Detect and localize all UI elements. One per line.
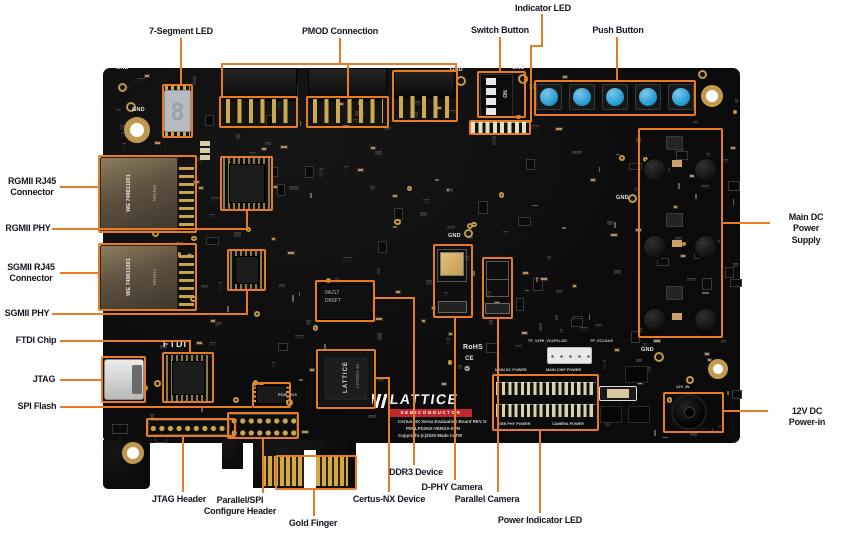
callout-box-gold-finger [275, 455, 357, 490]
gnd-silkscreen: GND [132, 108, 145, 114]
label-gold-finger: Gold Finger [289, 518, 337, 529]
board-title-line: Copyright (c)2020 Made in TW [398, 433, 462, 439]
smd-component [279, 284, 285, 287]
smd-component [730, 279, 742, 287]
smd-component [654, 430, 656, 437]
label-switch-button: Switch Button [471, 25, 529, 36]
power-group-label: MAIN DC POWER [495, 368, 527, 373]
smd-component [211, 197, 220, 201]
smd-component [154, 141, 161, 145]
fuse-element [607, 389, 629, 398]
leader-switch [499, 37, 501, 72]
smd-component [306, 320, 310, 325]
callout-box-push-button [534, 80, 696, 116]
label-parspi-header: Parallel/SPI Configure Header [204, 495, 276, 518]
smd-component [704, 352, 710, 356]
smd-component [370, 186, 374, 190]
smd-component [209, 342, 217, 346]
smd-component [193, 76, 197, 85]
leader-pmod [221, 63, 457, 65]
smd-component [518, 217, 531, 226]
smd-component [292, 295, 294, 302]
callout-box-ftdi [162, 352, 214, 403]
diode [628, 406, 650, 423]
smd-component [300, 121, 302, 127]
callout-box-main-dc [638, 128, 723, 338]
smd-component [392, 194, 399, 198]
jumper [112, 424, 128, 434]
smd-component [196, 341, 203, 345]
smd-component [653, 339, 661, 343]
smd-component [539, 323, 542, 330]
smd-component [516, 298, 525, 311]
leader-sgmii-phy [246, 291, 248, 315]
rohs-silkscreen: RoHS [463, 344, 483, 351]
smd-component [287, 251, 295, 255]
smd-component [614, 348, 620, 352]
smd-component [289, 186, 299, 190]
callout-box-sgmii-phy [227, 249, 266, 291]
callout-box-switch [477, 71, 526, 118]
label-spi-flash: SPI Flash [18, 401, 57, 412]
testpoint-pad [118, 83, 127, 92]
smd-component [536, 277, 538, 282]
smd-component [580, 327, 589, 331]
smd-component [421, 319, 427, 323]
leader-jtag [60, 379, 101, 381]
smd-component [254, 311, 260, 317]
smd-component [309, 368, 316, 372]
leader-gold-finger [313, 490, 315, 516]
callout-box-parallel-camera [482, 257, 513, 319]
callout-box-12v [663, 392, 724, 433]
smd-component [249, 152, 256, 156]
smd-component [441, 382, 447, 386]
smd-component [209, 214, 215, 219]
smd-component [595, 324, 602, 328]
smd-component [562, 75, 568, 79]
power-group-label: MAIN CHIP POWER [546, 368, 581, 373]
callout-box-power-led [492, 374, 599, 431]
mounting-hole [701, 85, 723, 107]
leader-main-dc [723, 222, 770, 224]
label-sgmii-rj45: SGMII RJ45 Connector [7, 262, 55, 285]
label-dphy-camera: D-PHY Camera [422, 482, 483, 493]
smd-component [614, 270, 621, 274]
testpoint-pad [686, 376, 694, 384]
smd-component [599, 167, 601, 173]
leader-parallel-camera [497, 319, 499, 492]
smd-component [305, 166, 313, 178]
mounting-hole [122, 442, 144, 464]
smd-component [227, 306, 229, 312]
smd-component [198, 186, 204, 190]
board-title-line: Certus-NX Versa Evaluation Board REV D [398, 419, 487, 425]
smd-component [610, 233, 618, 237]
callout-box-spi-flash [252, 382, 291, 408]
smd-component [590, 178, 596, 182]
leader-indicator-led [530, 45, 532, 122]
smd-component [607, 221, 614, 225]
led [200, 148, 210, 153]
diode [600, 406, 622, 423]
leader-parspi [262, 439, 264, 493]
smd-component [555, 127, 563, 131]
label-jtag-header: JTAG Header [152, 494, 206, 505]
smd-component [215, 324, 220, 327]
smd-component [280, 145, 288, 149]
testpoint-pad [654, 352, 664, 362]
label-indicator-led: Indicator LED [515, 3, 571, 14]
lattice-semiconductor-bar: SEMICONDUCTOR [390, 409, 472, 417]
smd-component [447, 226, 456, 229]
label-pmod-connection: PMOD Connection [302, 26, 378, 37]
smd-component [299, 292, 301, 297]
smd-component [234, 232, 241, 237]
gnd-silkscreen: GND [641, 348, 654, 354]
smd-component [357, 168, 364, 172]
smd-component [137, 78, 145, 83]
smd-component [271, 237, 276, 241]
leader-ddr3 [413, 297, 415, 465]
smd-component [218, 282, 223, 292]
callout-box-7-segment [162, 84, 193, 138]
smd-component [407, 186, 412, 191]
smd-component [210, 319, 216, 323]
smd-component [116, 109, 121, 113]
smd-component [272, 362, 275, 367]
smd-component [378, 241, 387, 253]
smd-component [733, 263, 738, 266]
smd-component [735, 99, 738, 104]
label-12v-dc: 12V DC Power-in [786, 406, 829, 429]
smd-component [144, 74, 150, 78]
mounting-hole [124, 117, 150, 143]
smd-component [319, 168, 323, 177]
label-rgmii-rj45: RGMII RJ45 Connector [8, 176, 56, 199]
label-sgmii-phy: SGMII PHY [5, 308, 50, 319]
smd-component [733, 110, 738, 115]
leader-7-segment [180, 38, 182, 85]
smd-component [478, 201, 488, 214]
smd-component [589, 314, 591, 320]
smd-component [690, 433, 697, 436]
smd-component [301, 430, 309, 434]
smd-component [721, 340, 726, 343]
callout-box-pmod-1 [219, 96, 298, 128]
smd-component [375, 317, 383, 321]
smd-component [310, 193, 312, 199]
smd-component [525, 290, 529, 292]
smd-component [377, 333, 381, 341]
smd-component [449, 189, 453, 193]
label-ddr3: DDR3 Device [389, 467, 443, 478]
smd-component [522, 271, 529, 275]
led [200, 141, 210, 146]
mounting-hole [708, 359, 728, 379]
smd-component [377, 379, 384, 383]
gnd-silkscreen: GND [616, 196, 629, 202]
callout-box-ddr3 [315, 280, 375, 322]
smd-component [730, 146, 736, 150]
smd-component [662, 437, 668, 439]
testpoint-pad [628, 194, 637, 203]
smd-component [265, 142, 271, 145]
smd-component [636, 359, 642, 362]
testpoint-pad [464, 229, 473, 238]
smd-component [725, 267, 734, 278]
smd-component [572, 284, 578, 288]
smd-component [395, 290, 402, 294]
testpoint-pad [698, 70, 707, 79]
smd-component [368, 415, 377, 418]
leader-rgmii-rj45 [60, 186, 98, 188]
lattice-logo-text: LATTICE [389, 392, 460, 406]
smd-component [344, 166, 349, 169]
callout-box-pmod-2 [306, 96, 389, 128]
callout-box-sgmii-rj45 [98, 243, 197, 311]
smd-component [295, 335, 305, 340]
callout-box-rgmii-phy [220, 156, 273, 211]
smd-component [560, 329, 563, 334]
smd-component [515, 345, 523, 348]
callout-box-indicator-led [469, 120, 531, 135]
smd-component [562, 227, 566, 229]
leader-indicator-led [541, 14, 543, 47]
leader-pmod [455, 63, 457, 72]
ce-silkscreen: CE [465, 356, 474, 362]
label-parallel-camera: Parallel Camera [455, 494, 520, 505]
gnd-silkscreen: GND [116, 66, 129, 72]
callout-box-certus [316, 349, 376, 409]
label-push-button: Push Button [592, 25, 643, 36]
leader-push-button [616, 37, 618, 81]
recycle-silkscreen: ♲ [464, 366, 470, 373]
smd-component [634, 188, 638, 192]
smd-component [616, 154, 620, 156]
12v-in-silkscreen: 12V_IN [676, 384, 689, 390]
smd-component [619, 155, 625, 161]
board-diagram: 8 ON WE 749811001 NR1943 WE 749811001 NR… [0, 0, 850, 534]
smd-component [732, 390, 743, 398]
callout-box-rgmii-rj45 [98, 155, 197, 233]
smd-component [435, 179, 439, 181]
leader-rgmii-phy [246, 211, 248, 230]
smd-component [603, 360, 606, 369]
smd-component [733, 199, 735, 206]
leader-ftdi [189, 340, 191, 353]
white-connector [547, 347, 592, 364]
leader-sgmii-rj45 [60, 272, 98, 274]
tp-silkscreen: TP_V1P8_VCCPLLSD [528, 339, 567, 344]
smd-component [205, 115, 213, 127]
label-ftdi-chip: FTDI Chip [16, 335, 57, 346]
smd-component [489, 320, 493, 325]
leader-pmod [347, 63, 349, 97]
smd-component [693, 121, 698, 124]
label-power-indicator-led: Power Indicator LED [498, 515, 582, 526]
smd-component [526, 159, 535, 170]
tp-silkscreen: TP_VCCAUX [590, 339, 613, 344]
label-main-dc-power: Main DC Power Supply [784, 212, 828, 246]
smd-component [313, 325, 318, 330]
smd-component [423, 199, 430, 203]
smd-component [492, 136, 496, 145]
smd-component [547, 256, 552, 261]
callout-box-pmod-3 [392, 70, 458, 122]
smd-component [370, 146, 377, 150]
callout-box-jtag [101, 356, 146, 403]
smd-component [191, 236, 197, 242]
smd-component [458, 365, 462, 369]
smd-component [448, 332, 454, 336]
smd-component [448, 360, 453, 365]
label-7-segment-led: 7-Segment LED [149, 26, 213, 37]
smd-component [201, 285, 207, 288]
smd-component [572, 151, 582, 154]
smd-component [393, 226, 397, 228]
callout-box-dphy [433, 244, 473, 318]
smd-component [206, 237, 219, 246]
smd-component [122, 143, 126, 151]
gnd-silkscreen: GND [448, 234, 461, 240]
smd-component [299, 379, 303, 381]
smd-component [154, 380, 161, 387]
smd-component [540, 277, 548, 281]
smd-component [614, 222, 616, 228]
smd-component [375, 151, 382, 155]
leader-12v [724, 410, 768, 412]
callout-box-jtag-header [146, 418, 236, 437]
smd-component [343, 257, 353, 261]
smd-component [473, 271, 475, 276]
smd-component [420, 212, 427, 216]
label-rgmii-phy: RGMII PHY [5, 223, 50, 234]
label-jtag: JTAG [33, 374, 56, 385]
smd-component [556, 290, 563, 293]
smd-component [521, 331, 528, 335]
smd-component [377, 268, 381, 274]
leader-rgmii-phy [52, 228, 248, 230]
smd-component [532, 205, 538, 207]
smd-component [446, 338, 450, 346]
leader-pmod [221, 63, 223, 97]
smd-component [236, 134, 240, 139]
smd-component [503, 231, 509, 235]
leader-pmod [339, 38, 341, 65]
smd-component [201, 408, 203, 412]
smd-component [530, 125, 539, 129]
smd-component [394, 219, 400, 225]
leader-spi-flash [60, 406, 252, 408]
smd-component [277, 184, 285, 197]
smd-component [571, 318, 583, 327]
smd-component [426, 280, 431, 284]
smd-component [278, 343, 289, 351]
smd-component [727, 391, 729, 396]
leader-sgmii-phy [52, 313, 248, 315]
callout-box-parspi-header [227, 412, 299, 439]
smd-component [555, 315, 559, 320]
smd-component [728, 181, 740, 191]
leader-ddr3 [375, 297, 415, 299]
leader-power-led [539, 431, 541, 513]
leader-dphy [454, 318, 456, 480]
diode [625, 366, 648, 383]
smd-component [261, 147, 268, 151]
label-certus-nx: Certus-NX Device [353, 494, 425, 505]
leader-jtag-header [182, 437, 184, 492]
smd-component [233, 397, 239, 403]
leader-ftdi [60, 340, 191, 342]
smd-component [499, 192, 505, 198]
led [200, 155, 210, 160]
